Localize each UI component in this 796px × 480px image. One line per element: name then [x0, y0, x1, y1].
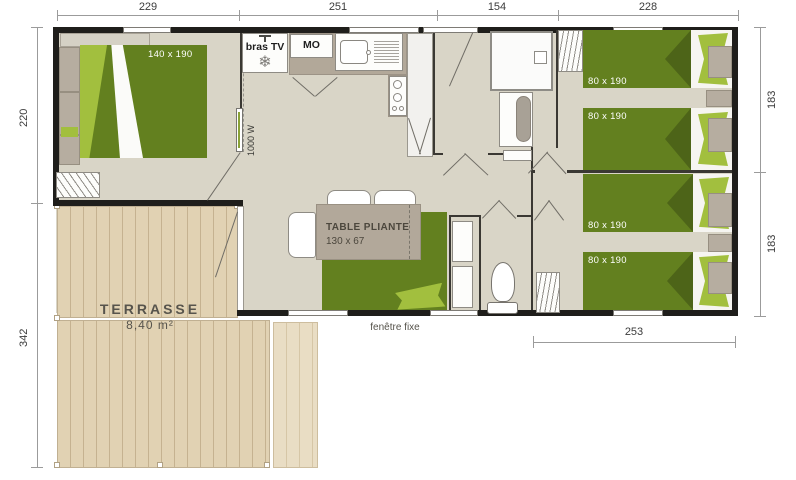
dim-tick: [558, 10, 559, 21]
terrace-area: 8,40 m²: [90, 318, 210, 332]
partition-wc-left: [479, 215, 481, 310]
partition-hall-a: [449, 215, 479, 217]
partition-divider-b: [567, 170, 732, 173]
nightstand: [708, 262, 732, 294]
window-living: [430, 310, 478, 316]
dim-label-right-1: 183: [766, 72, 778, 127]
sink-drainboard: [374, 39, 399, 65]
dim-tick: [533, 336, 534, 348]
single-bed-3-size: 80 x 190: [588, 220, 627, 231]
single-bed-2-size: 80 x 190: [588, 111, 627, 122]
sink-basin: [340, 40, 368, 64]
terrace-title: TERRASSE: [90, 301, 210, 317]
master-headboard-unit: [59, 47, 80, 92]
dim-line: [37, 27, 38, 468]
nightstand: [708, 193, 732, 227]
wall-right: [732, 27, 738, 316]
burner: [392, 106, 397, 111]
snowflake-icon: ❄: [243, 52, 287, 72]
bedroom1-wardrobe: [558, 30, 583, 72]
patio-door-bay: [237, 206, 244, 311]
terrace-post: [54, 462, 60, 468]
dim-label-top-4: 228: [618, 1, 678, 13]
partition-wc-right: [531, 172, 533, 310]
nightstand: [708, 46, 732, 78]
microwave-label: MO: [290, 39, 333, 51]
terrace-side-deck: [273, 322, 318, 468]
dim-label-left-1: 220: [18, 90, 30, 145]
partition-bathroom-left: [433, 33, 435, 153]
table-size-label: 130 x 67: [326, 236, 416, 247]
dim-label-right-2: 183: [766, 216, 778, 271]
dim-label-left-2: 342: [18, 310, 30, 365]
dim-tick: [735, 336, 736, 348]
partition-storage-left: [449, 215, 451, 310]
master-headboard-unit: [59, 135, 80, 165]
toilet-bowl: [491, 262, 515, 302]
storage-cube: [452, 266, 473, 308]
nightstand: [708, 118, 732, 152]
floor-plan: 229 251 154 228 220 342 183 183 253 TERR…: [0, 0, 796, 480]
dim-line: [57, 15, 738, 16]
dim-label-top-2: 251: [308, 1, 368, 13]
dim-tick: [754, 27, 766, 28]
window-fixed: [288, 310, 348, 316]
master-bed-size: 140 x 190: [148, 49, 192, 60]
radiator-element: [238, 112, 240, 148]
dim-tick: [754, 172, 766, 173]
dim-label-top-3: 154: [467, 1, 527, 13]
tall-cabinet: [407, 33, 433, 157]
partition-bathroom-bottom-a: [433, 153, 443, 155]
window-bedroom2: [613, 310, 663, 316]
fixed-window-label: fenêtre fixe: [340, 322, 450, 333]
radiator-label: 1000 W: [246, 98, 256, 156]
between-bed-shelf: [708, 234, 732, 252]
wall-bedroom-bottom: [53, 200, 243, 206]
burner: [393, 93, 402, 102]
dim-label-bottom: 253: [604, 326, 664, 338]
terrace-post: [157, 462, 163, 468]
terrace-post: [264, 462, 270, 468]
dim-tick: [738, 10, 739, 21]
master-dresser: [56, 172, 100, 198]
dim-tick: [437, 10, 438, 21]
master-cushion: [61, 127, 78, 137]
dim-tick: [31, 27, 43, 28]
sink-faucet: [366, 50, 371, 55]
dim-tick: [57, 10, 58, 21]
bath-shelf: [503, 150, 532, 161]
dim-tick: [754, 316, 766, 317]
terrace-lower-deck: [57, 320, 270, 468]
single-bed-1-size: 80 x 190: [588, 76, 627, 87]
chair: [288, 212, 316, 258]
single-bed-4-size: 80 x 190: [588, 255, 627, 266]
dim-tick: [239, 10, 240, 21]
table-label: TABLE PLIANTE: [326, 222, 416, 233]
dim-tick: [31, 467, 43, 468]
burner: [393, 80, 402, 89]
burner: [399, 106, 404, 111]
shower-drain: [534, 51, 547, 64]
dim-line: [533, 342, 735, 343]
washbasin: [516, 96, 531, 142]
dim-label-top-1: 229: [118, 1, 178, 13]
between-bed-shelf: [706, 90, 732, 107]
storage-cube: [452, 221, 473, 262]
bedroom2-wardrobe: [536, 272, 560, 313]
toilet-tank: [487, 302, 518, 314]
dim-tick: [31, 203, 43, 204]
terrace-post: [54, 315, 60, 321]
